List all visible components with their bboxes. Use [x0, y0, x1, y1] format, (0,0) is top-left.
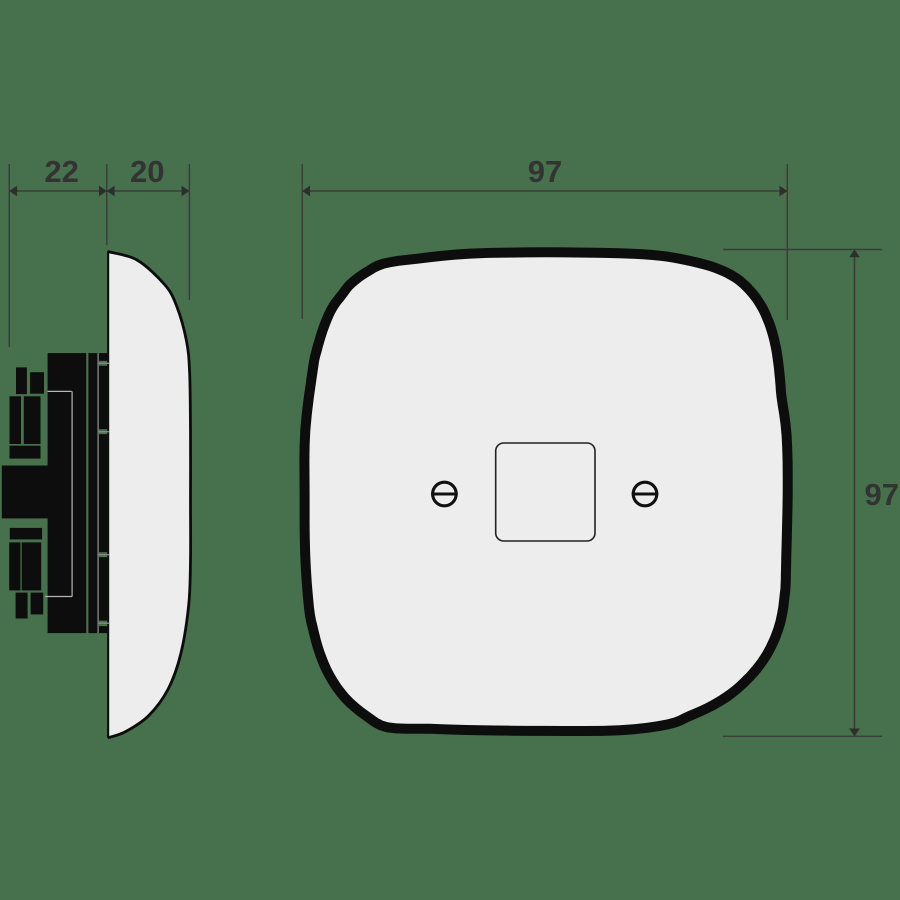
- svg-text:97: 97: [865, 477, 899, 512]
- svg-text:97: 97: [528, 154, 562, 189]
- svg-text:22: 22: [44, 154, 78, 189]
- svg-text:20: 20: [130, 154, 164, 189]
